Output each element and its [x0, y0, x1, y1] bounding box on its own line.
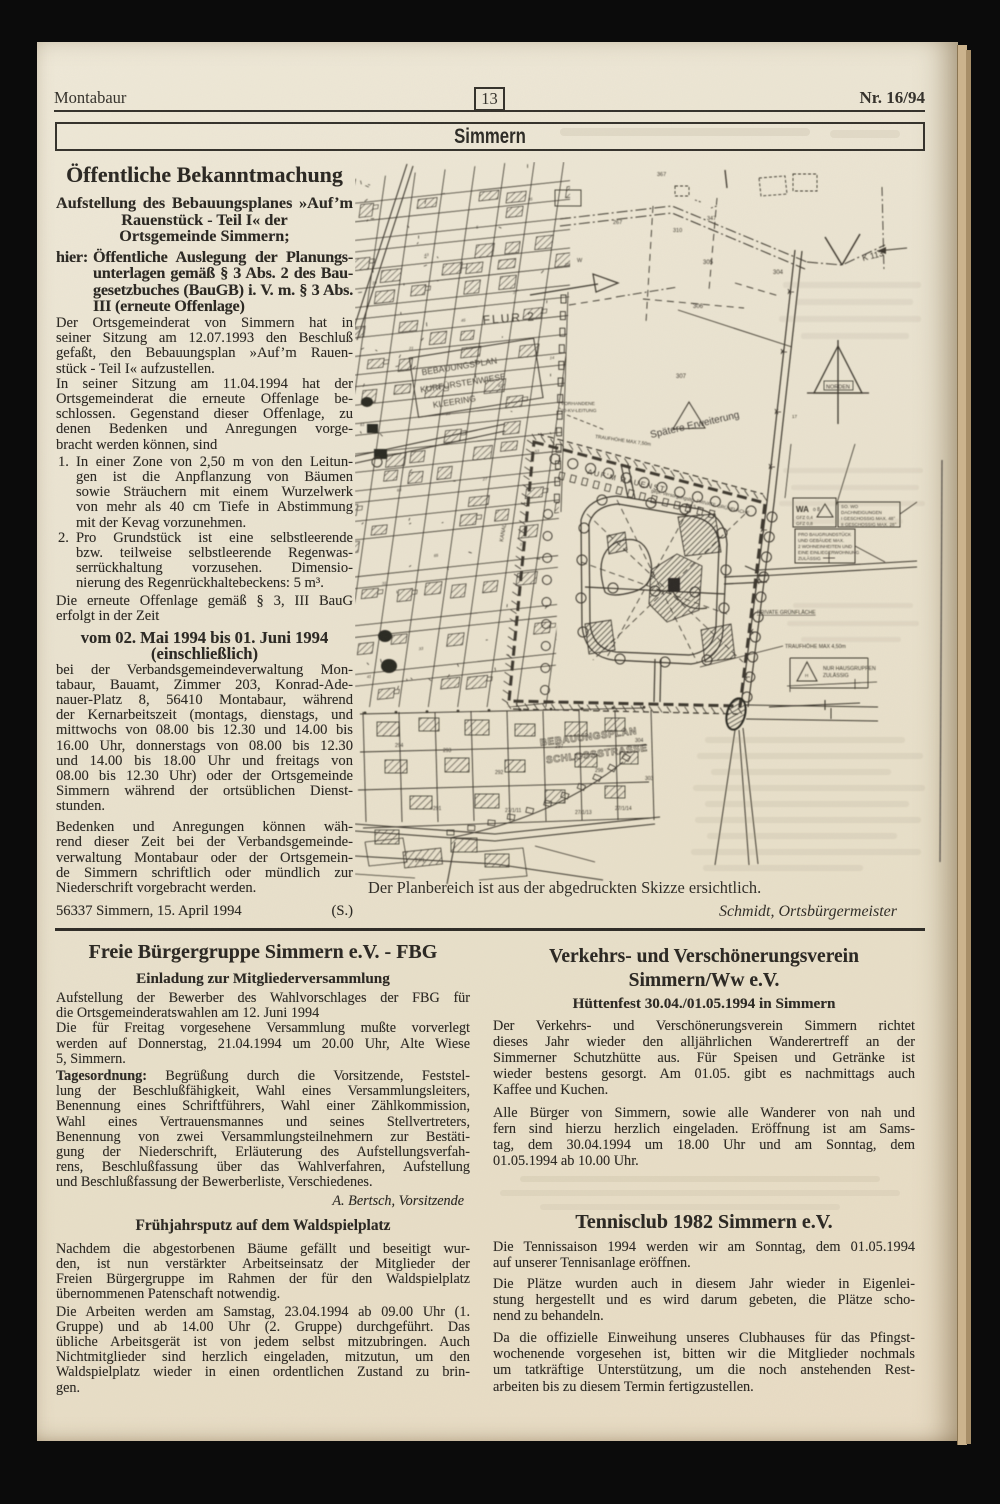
svg-text:NORDEN: NORDEN [826, 385, 850, 391]
svg-text:307: 307 [676, 374, 687, 380]
svg-text:H: H [805, 673, 808, 678]
svg-text:VORHANDENE: VORHANDENE [561, 401, 595, 407]
svg-text:UND GEBÄUDE MAX.: UND GEBÄUDE MAX. [798, 537, 844, 543]
svg-text:TRAUFHÖHE MAX 7,50m: TRAUFHÖHE MAX 7,50m [595, 433, 652, 448]
svg-text:294: 294 [395, 743, 404, 749]
svg-text:14: 14 [550, 355, 556, 360]
svg-text:Spätere Erweiterung: Spätere Erweiterung [649, 410, 740, 441]
svg-text:27/1/13: 27/1/13 [575, 810, 592, 816]
svg-text:304: 304 [773, 270, 784, 276]
svg-text:305: 305 [703, 260, 714, 266]
svg-text:W: W [577, 258, 583, 264]
svg-text:63: 63 [397, 487, 403, 492]
svg-text:NUR HAUSGRUPPEN: NUR HAUSGRUPPEN [823, 666, 876, 672]
svg-text:293: 293 [443, 748, 452, 754]
svg-text:303: 303 [645, 776, 654, 782]
svg-text:61: 61 [360, 422, 366, 427]
svg-text:27: 27 [483, 476, 489, 481]
svg-text:TRAUFHÖHE MAX 4,50m: TRAUFHÖHE MAX 4,50m [785, 643, 846, 650]
svg-text:291: 291 [433, 806, 442, 812]
svg-text:27/1/11: 27/1/11 [505, 808, 522, 814]
svg-text:347: 347 [707, 216, 716, 222]
svg-text:KANAL: KANAL [499, 524, 508, 543]
svg-text:17: 17 [792, 414, 798, 419]
svg-text:45: 45 [461, 317, 467, 322]
svg-text:43: 43 [424, 252, 430, 257]
svg-text:33: 33 [418, 646, 424, 651]
svg-text:35: 35 [528, 196, 534, 201]
svg-text:ZULÄSSIG: ZULÄSSIG [823, 672, 849, 679]
svg-text:267: 267 [613, 220, 622, 226]
svg-text:DACHNEIGUNGEN: DACHNEIGUNGEN [841, 510, 882, 515]
svg-text:K 113: K 113 [861, 248, 885, 263]
svg-text:ZULÄSSIG: ZULÄSSIG [798, 555, 821, 561]
svg-text:WA: WA [796, 505, 809, 514]
svg-text:2 WOHNEINHEITEN UND: 2 WOHNEINHEITEN UND [798, 544, 853, 549]
svg-text:367: 367 [657, 172, 666, 178]
svg-text:PRIVATE GRÜNFLÄCHE: PRIVATE GRÜNFLÄCHE [757, 609, 816, 616]
svg-text:FLUR 2: FLUR 2 [482, 309, 536, 327]
svg-text:27/1/14: 27/1/14 [615, 806, 632, 812]
svg-text:310: 310 [673, 228, 682, 234]
svg-text:306: 306 [693, 304, 704, 310]
svg-text:PRO BAUGRUNDSTÜCK: PRO BAUGRUNDSTÜCK [798, 531, 852, 537]
svg-text:292: 292 [495, 770, 504, 776]
svg-text:20-KV-LEITUNG: 20-KV-LEITUNG [561, 408, 597, 414]
svg-text:298: 298 [595, 768, 604, 774]
svg-text:65: 65 [434, 552, 440, 557]
svg-text:o 8: o 8 [813, 507, 820, 513]
svg-text:41: 41 [367, 674, 373, 679]
